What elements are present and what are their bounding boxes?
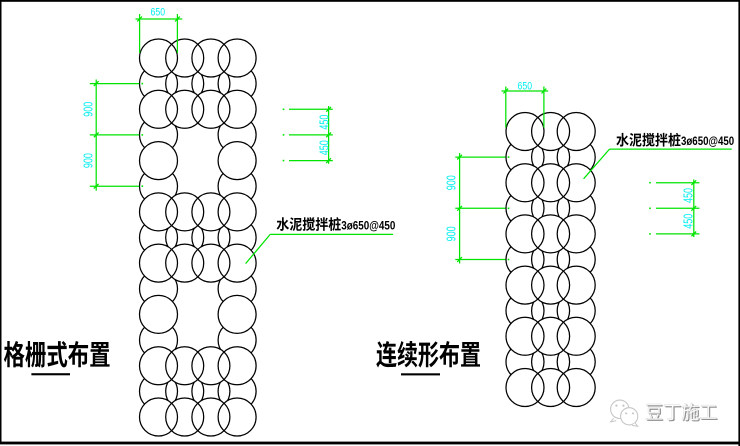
svg-text:450: 450 — [682, 188, 696, 203]
svg-text:650: 650 — [151, 6, 166, 18]
svg-text:900: 900 — [82, 102, 96, 117]
svg-text:3ø650@450: 3ø650@450 — [341, 218, 395, 232]
svg-text:650: 650 — [518, 80, 533, 92]
svg-text:450: 450 — [682, 214, 696, 229]
svg-text:900: 900 — [445, 226, 459, 241]
svg-text:900: 900 — [445, 175, 459, 190]
svg-text:450: 450 — [318, 140, 332, 155]
svg-text:3ø650@450: 3ø650@450 — [681, 134, 735, 148]
svg-text:450: 450 — [318, 115, 332, 130]
svg-text:900: 900 — [82, 153, 96, 168]
